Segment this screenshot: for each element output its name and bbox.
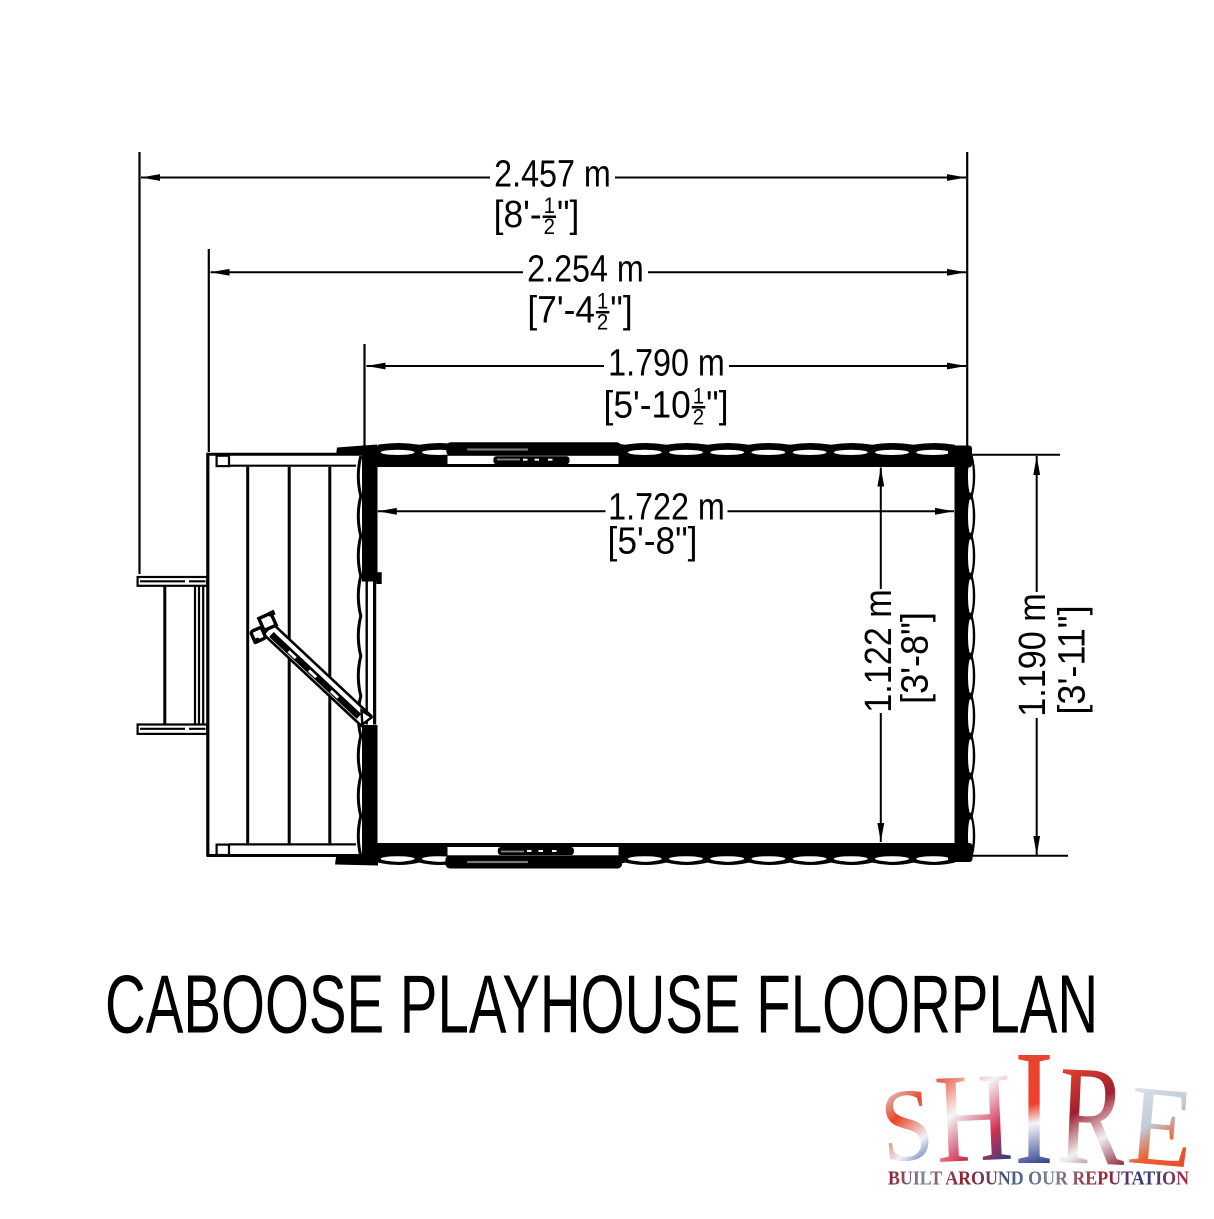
svg-text:[5'-8"]: [5'-8"] <box>607 519 697 561</box>
svg-text:[5'-10: [5'-10 <box>604 383 691 425</box>
svg-text:"]: "] <box>610 288 632 330</box>
svg-text:2: 2 <box>693 405 704 430</box>
svg-text:2: 2 <box>597 310 608 335</box>
svg-text:BUILT AROUND OUR REPUTATION: BUILT AROUND OUR REPUTATION <box>888 1168 1189 1190</box>
svg-text:2: 2 <box>544 214 555 239</box>
svg-text:[8'-: [8'- <box>494 193 542 235</box>
svg-text:[3'-8"]: [3'-8"] <box>893 612 936 704</box>
svg-text:2.254 m: 2.254 m <box>527 248 644 290</box>
svg-text:"]: "] <box>557 193 579 235</box>
svg-text:1.190 m: 1.190 m <box>1010 593 1053 716</box>
svg-text:1.790 m: 1.790 m <box>608 342 725 384</box>
svg-text:"]: "] <box>706 383 728 425</box>
svg-text:[7'-4: [7'-4 <box>527 288 595 330</box>
svg-text:CABOOSE PLAYHOUSE FLOORPLAN: CABOOSE PLAYHOUSE FLOORPLAN <box>105 959 1098 1051</box>
svg-text:[3'-11"]: [3'-11"] <box>1050 605 1093 714</box>
svg-text:2.457 m: 2.457 m <box>494 153 611 195</box>
